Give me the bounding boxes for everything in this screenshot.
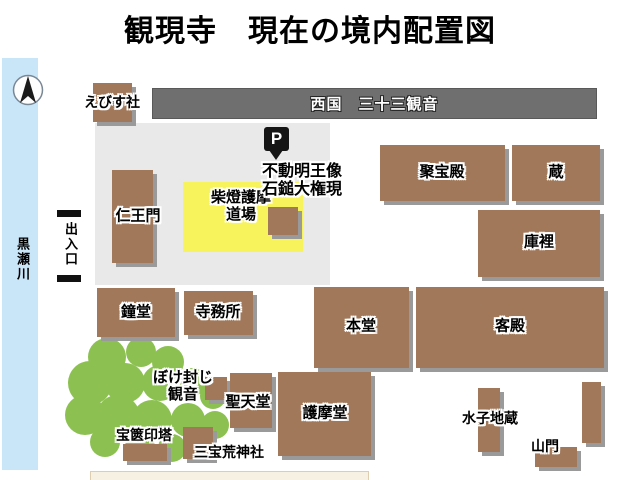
parking-icon: P	[264, 127, 289, 151]
temple-grounds-map: 観現寺 現在の境内配置図 黒瀬川 出入口 西国 三十三観音	[0, 0, 620, 480]
label-kura: 蔵	[548, 163, 563, 180]
river-label: 黒瀬川	[13, 237, 32, 282]
building-hokyointo	[123, 444, 167, 461]
label-shotendo: 聖天堂	[225, 393, 270, 410]
label-hondo: 本堂	[346, 317, 376, 334]
page-title: 観現寺 現在の境内配置図	[0, 6, 620, 50]
building-wall-pillar	[582, 382, 601, 443]
label-sanmon: 山門	[531, 438, 559, 454]
entrance-gate-bar-bottom	[57, 275, 81, 282]
bottom-path	[90, 471, 369, 480]
entrance-gate-bar-top	[57, 210, 81, 217]
label-shuhoden: 聚宝殿	[419, 163, 464, 180]
label-gomado: 護摩堂	[302, 404, 347, 421]
label-fudo-gongen: 不動明王像 石鎚大権現	[262, 163, 342, 200]
saigoku-kannon-label: 西国 三十三観音	[310, 93, 438, 114]
saigoku-kannon-row: 西国 三十三観音	[152, 88, 597, 119]
parking-icon-pointer	[269, 150, 283, 160]
label-bokefuji-kannon: ぼけ封じ 観音	[153, 369, 213, 404]
entrance-label: 出入口	[61, 222, 80, 267]
label-ebisusha: えびす社	[84, 94, 140, 110]
parking-icon-letter: P	[264, 127, 289, 151]
label-jimusho: 寺務所	[195, 303, 240, 320]
label-hokyointo: 宝篋印塔	[116, 427, 172, 443]
label-kuri: 庫裡	[524, 233, 554, 250]
label-kyakuden: 客殿	[495, 317, 525, 334]
building-gongen-shrine	[268, 207, 298, 235]
label-mizuko-jizo: 水子地蔵	[462, 410, 518, 426]
label-sanpo-kojinsha: 三宝荒神社	[194, 444, 264, 460]
north-compass-icon	[10, 72, 46, 108]
label-niomon: 仁王門	[115, 207, 160, 224]
label-shodo: 鐘堂	[121, 303, 151, 320]
